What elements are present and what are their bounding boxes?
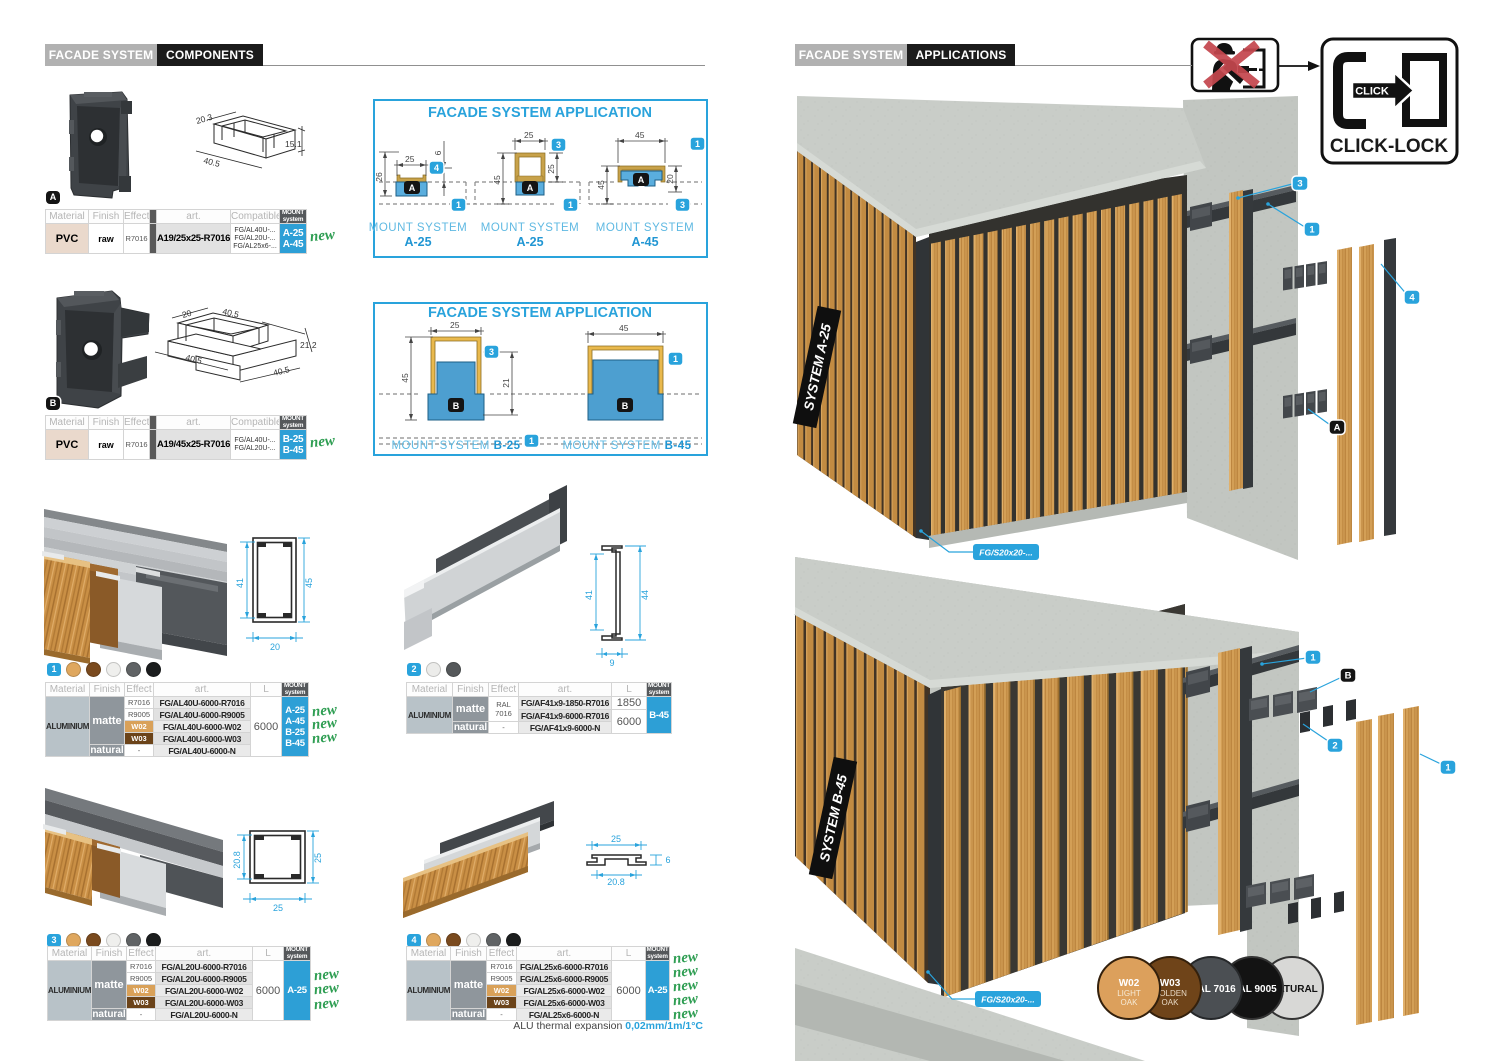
svg-text:FACADE SYSTEM APPLICATION: FACADE SYSTEM APPLICATION (428, 305, 652, 321)
svg-text:FG/S20x20-...: FG/S20x20-... (979, 548, 1032, 558)
svg-text:1: 1 (695, 139, 700, 149)
svg-text:25: 25 (405, 154, 415, 164)
svg-text:OAK: OAK (1121, 998, 1139, 1007)
svg-text:MOUNT SYSTEM: MOUNT SYSTEM (481, 222, 579, 234)
svg-text:45: 45 (304, 578, 314, 588)
svg-text:45: 45 (619, 323, 629, 333)
svg-text:25: 25 (450, 320, 460, 330)
svg-text:CLICK-LOCK: CLICK-LOCK (1330, 136, 1448, 157)
svg-text:41: 41 (235, 578, 245, 588)
svg-text:1: 1 (673, 354, 678, 364)
svg-text:W02: W02 (1119, 978, 1140, 989)
svg-text:A-25: A-25 (404, 235, 431, 249)
svg-text:45: 45 (492, 175, 502, 185)
svg-text:3: 3 (556, 140, 561, 150)
svg-text:A: A (527, 183, 534, 193)
svg-text:25: 25 (611, 834, 621, 844)
svg-text:1: 1 (1445, 763, 1451, 774)
svg-text:6: 6 (665, 855, 670, 865)
svg-text:3: 3 (1297, 179, 1302, 190)
svg-text:OAK: OAK (1162, 998, 1180, 1007)
svg-text:20: 20 (270, 642, 280, 652)
svg-text:W03: W03 (1160, 978, 1181, 989)
svg-text:26: 26 (374, 172, 384, 182)
svg-text:25: 25 (524, 130, 534, 140)
svg-text:1: 1 (456, 200, 461, 210)
svg-text:40.5: 40.5 (272, 364, 291, 378)
svg-text:45: 45 (400, 373, 410, 383)
svg-text:LIGHT: LIGHT (1117, 989, 1141, 998)
svg-text:MOUNT SYSTEM B-25: MOUNT SYSTEM B-25 (391, 440, 520, 452)
svg-text:25: 25 (273, 903, 283, 913)
svg-text:41: 41 (584, 590, 594, 600)
svg-text:A-25: A-25 (516, 235, 543, 249)
svg-text:A: A (409, 183, 416, 193)
svg-text:A: A (1334, 423, 1341, 434)
svg-text:44: 44 (640, 590, 650, 600)
svg-text:21.2: 21.2 (300, 340, 317, 350)
svg-text:4: 4 (1409, 293, 1415, 304)
svg-text:1: 1 (568, 200, 573, 210)
svg-text:CLICK: CLICK (1355, 86, 1389, 98)
svg-text:20.3: 20.3 (195, 112, 214, 126)
svg-text:B: B (1345, 671, 1352, 682)
svg-text:MOUNT SYSTEM: MOUNT SYSTEM (596, 222, 694, 234)
svg-text:20.8: 20.8 (607, 877, 625, 887)
svg-text:3: 3 (489, 347, 494, 357)
svg-text:4: 4 (434, 163, 439, 173)
svg-text:B: B (453, 401, 460, 411)
svg-text:B: B (622, 401, 629, 411)
svg-text:15.1: 15.1 (285, 139, 302, 149)
svg-text:6: 6 (433, 150, 443, 155)
svg-text:20.8: 20.8 (232, 851, 242, 869)
svg-text:MOUNT SYSTEM B-45: MOUNT SYSTEM B-45 (562, 440, 691, 452)
svg-text:45: 45 (635, 130, 645, 140)
svg-text:MOUNT SYSTEM: MOUNT SYSTEM (369, 222, 467, 234)
svg-text:A: A (638, 175, 645, 185)
svg-text:20: 20 (181, 308, 193, 320)
svg-text:1: 1 (529, 436, 534, 446)
svg-text:45: 45 (596, 180, 606, 190)
svg-text:FACADE SYSTEM APPLICATION: FACADE SYSTEM APPLICATION (428, 105, 652, 121)
svg-text:20: 20 (665, 174, 675, 184)
svg-text:3: 3 (680, 200, 685, 210)
svg-text:25: 25 (313, 853, 323, 863)
svg-text:25: 25 (546, 164, 556, 174)
svg-text:FG/S20x20-...: FG/S20x20-... (981, 995, 1034, 1005)
svg-text:1: 1 (1309, 225, 1315, 236)
svg-text:9: 9 (609, 658, 614, 668)
svg-text:2: 2 (1332, 741, 1337, 752)
svg-text:21: 21 (501, 378, 511, 388)
svg-text:A-45: A-45 (631, 235, 658, 249)
svg-text:1: 1 (1310, 653, 1316, 664)
svg-text:40.5: 40.5 (203, 155, 222, 169)
